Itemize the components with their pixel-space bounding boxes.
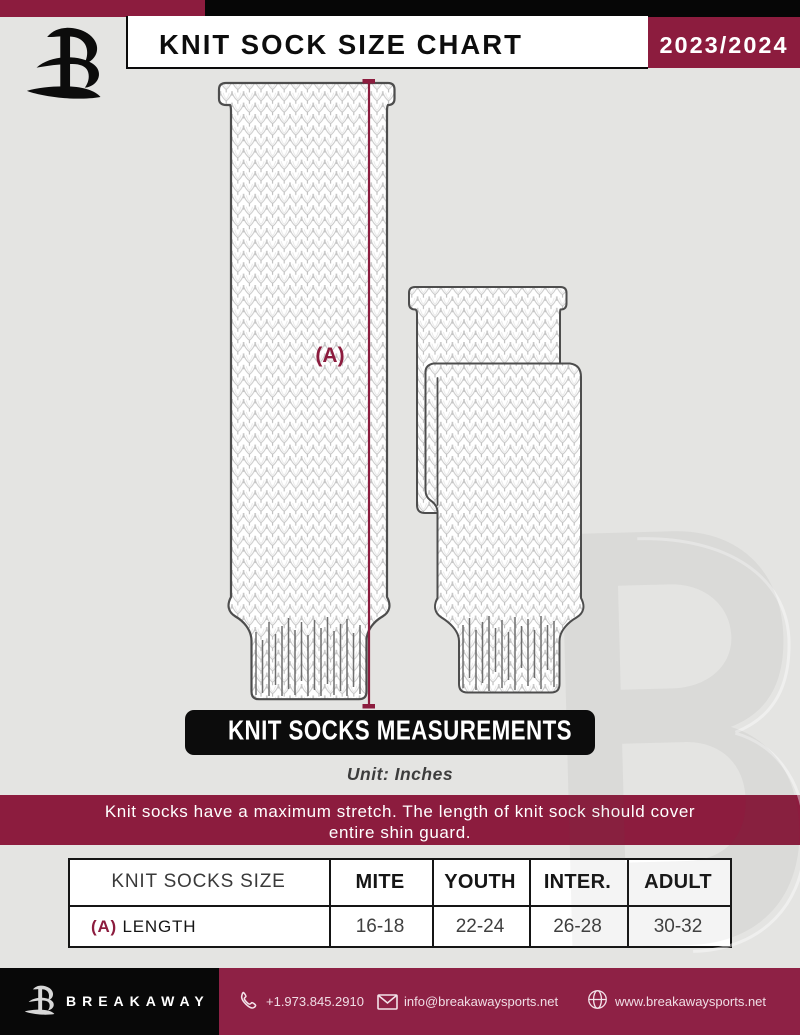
svg-text:(A): (A) [315,344,344,367]
